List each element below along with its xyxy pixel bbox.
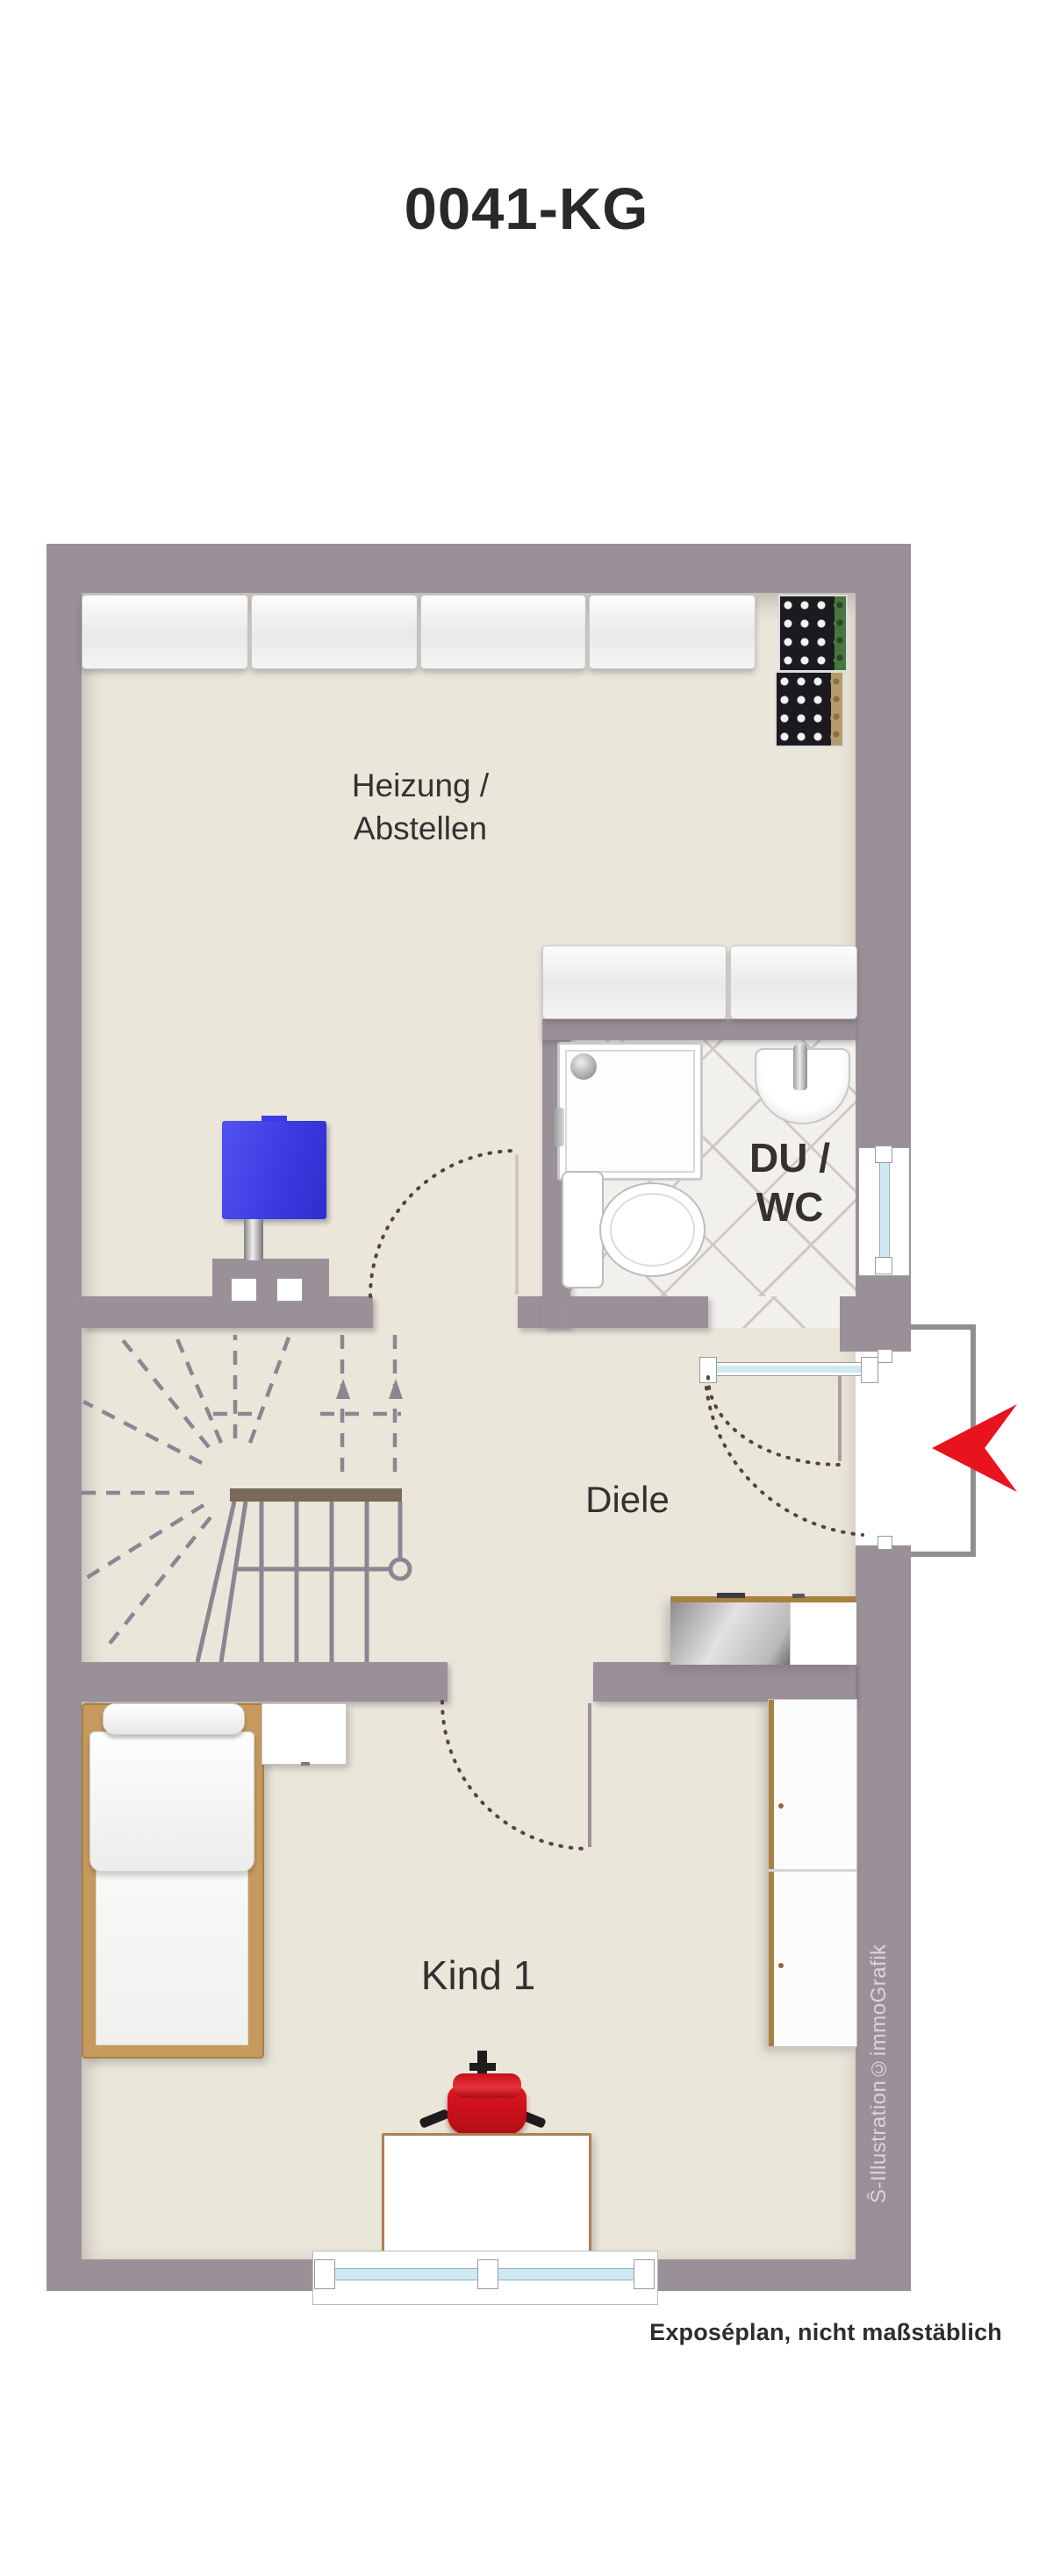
floorplan-page: 0041-KG <box>0 0 1053 2576</box>
entrance-landing-outline-top <box>911 1324 976 1330</box>
floorplan: Heizung / Abstellen DU / WC <box>47 544 911 2291</box>
entrance-landing-outline-bottom <box>911 1552 976 1557</box>
footer-note: Exposéplan, nicht maßstäblich <box>562 2319 1002 2346</box>
stairs-and-door-swing-linework <box>47 544 911 2291</box>
illustration-credit: Ŝ-Illustration©immoGrafik <box>867 1965 892 2203</box>
page-title: 0041-KG <box>0 175 1053 243</box>
